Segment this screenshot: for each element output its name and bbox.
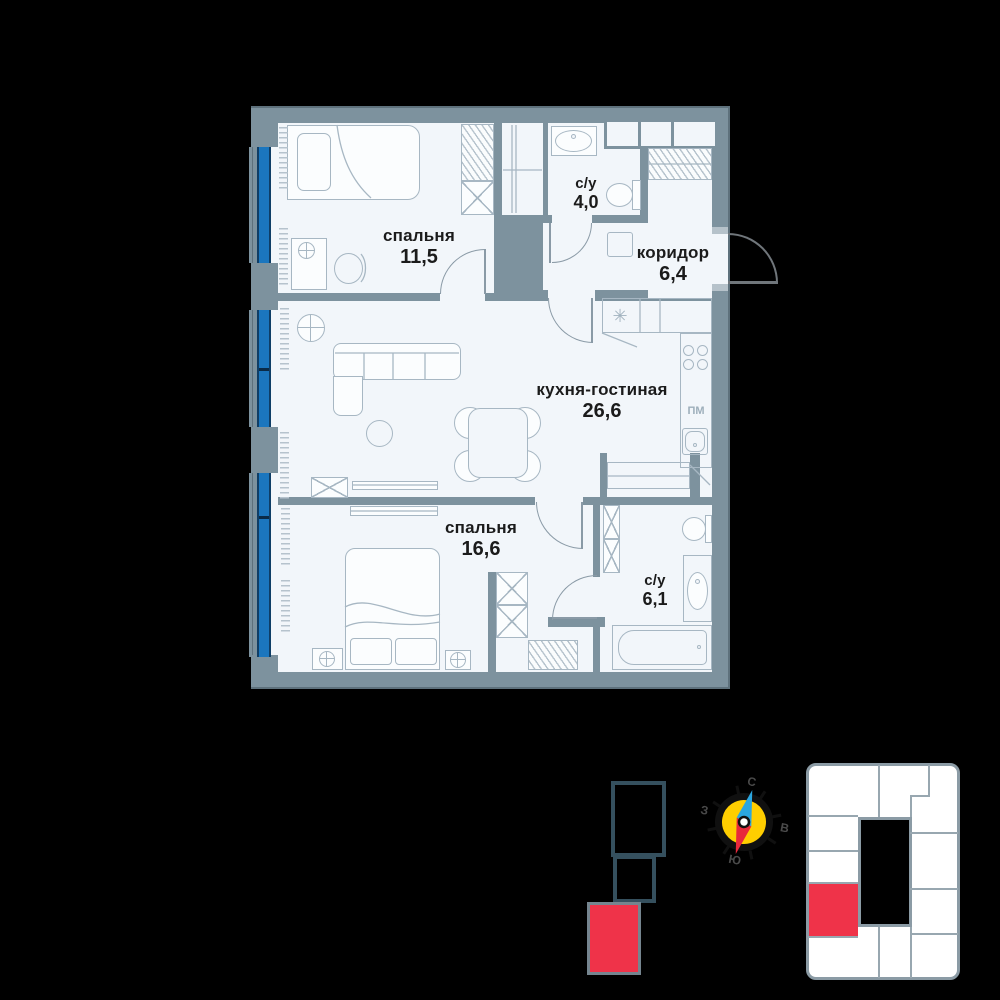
room-name: с/у: [625, 572, 685, 589]
entrance-door-leaf: [728, 281, 778, 284]
room-area: 4,0: [556, 192, 616, 213]
room-name: кухня-гостиная: [532, 380, 672, 400]
label-bedroom-2: спальня 16,6: [411, 518, 551, 561]
unit-divider: [808, 936, 858, 938]
window-glass-3: [257, 473, 271, 657]
radiator: [279, 228, 288, 285]
window-sill-2: [271, 310, 278, 427]
facade-pillar: [251, 263, 278, 310]
section-block-top: [611, 781, 666, 857]
room-area: 26,6: [532, 400, 672, 423]
door-leaf: [552, 617, 597, 619]
wardrobe-x: [496, 605, 528, 638]
unit-divider: [808, 850, 858, 852]
shaft-x: [603, 539, 620, 573]
nightstand-lamp-icon: [450, 652, 466, 668]
highlighted-unit: [809, 884, 858, 936]
stove-burner: [697, 345, 708, 356]
label-bathroom-1: с/у 4,0: [556, 175, 616, 213]
radiator: [279, 127, 288, 191]
facade-pillar: [251, 427, 278, 473]
window-tick: [259, 368, 269, 371]
wardrobe-x: [496, 572, 528, 605]
radiator: [280, 432, 289, 500]
wall-stub-closet-bed2: [488, 572, 496, 672]
room-name: с/у: [556, 175, 616, 192]
unit-divider: [910, 795, 930, 797]
sink-drain-dot: [693, 443, 697, 447]
dishwasher-label: ПМ: [677, 405, 715, 417]
bed-single-pillow: [297, 133, 331, 191]
facade-edge: [249, 473, 252, 657]
courtyard: [858, 817, 912, 927]
label-bedroom-1: спальня 11,5: [349, 226, 489, 269]
faucet-dot: [571, 134, 576, 139]
label-kitchen-living: кухня-гостиная 26,6: [532, 380, 672, 423]
radiator: [280, 308, 289, 370]
bed-pillow: [350, 638, 392, 665]
sofa-chaise: [333, 376, 363, 416]
room-closet-column: [502, 123, 543, 215]
compass-icon: С В Ю З: [690, 768, 798, 876]
room-name: спальня: [411, 518, 551, 538]
label-corridor: коридор 6,4: [628, 243, 718, 286]
closet-divider-1: [638, 122, 641, 146]
floor-lamp-icon: [297, 314, 325, 342]
unit-divider: [910, 832, 958, 834]
unit-divider: [928, 765, 930, 796]
stove-burner: [683, 359, 694, 370]
room-name: спальня: [349, 226, 489, 246]
section-block-highlight: [587, 902, 641, 975]
window-glass-1: [257, 147, 271, 263]
drain-dot: [697, 645, 701, 649]
stove-burner: [683, 345, 694, 356]
wall-stub-niche-left: [600, 453, 607, 497]
section-block-middle: [613, 855, 656, 903]
room-hall-closets: [604, 122, 715, 149]
door-leaf: [549, 223, 551, 263]
room-area: 6,4: [628, 263, 718, 286]
tv-console: [352, 481, 438, 490]
building-footprint: [806, 763, 960, 980]
toilet-tank: [632, 180, 641, 210]
window-sill-1: [271, 147, 278, 263]
dresser-tv: [350, 506, 438, 516]
window-sill-3: [271, 473, 278, 657]
room-area: 11,5: [349, 246, 489, 269]
coat-rack-hatched: [648, 148, 712, 180]
bathtub-inner: [618, 630, 707, 665]
sink-basin: [687, 572, 708, 610]
room-name: коридор: [628, 243, 718, 263]
dining-table: [468, 408, 528, 478]
label-bathroom-2: с/у 6,1: [625, 572, 685, 610]
shaft-x: [603, 505, 620, 539]
facade-pillar: [251, 655, 278, 687]
vent-star-icon: ✳: [608, 304, 632, 328]
storage-bench-hatched: [528, 640, 578, 670]
toilet-bowl: [682, 517, 706, 541]
wardrobe-x: [461, 181, 494, 215]
doorway-bedroom-1: [440, 293, 485, 301]
tv-bench-x: [311, 477, 348, 498]
unit-divider: [808, 815, 858, 817]
niche-cabinet: [607, 462, 690, 489]
nightstand-lamp-icon: [319, 651, 335, 667]
doorway-bathroom-1: [552, 215, 592, 223]
facade-edge: [249, 147, 252, 263]
facade-pillar: [251, 108, 278, 147]
faucet-dot: [695, 579, 700, 584]
radiator: [281, 508, 290, 565]
kitchen-sink-inner: [685, 431, 705, 452]
room-area: 16,6: [411, 538, 551, 561]
door-leaf: [591, 298, 593, 343]
entrance-door-arc: [728, 233, 778, 283]
unit-divider: [910, 888, 958, 890]
facade-edge: [249, 310, 252, 427]
sofa: [333, 343, 461, 380]
unit-divider: [910, 927, 912, 978]
wardrobe-hatched: [461, 124, 494, 181]
closet-divider-2: [671, 122, 674, 146]
unit-divider: [878, 927, 880, 978]
desk-lamp-icon: [298, 242, 315, 259]
room-area: 6,1: [625, 589, 685, 610]
stove-burner: [697, 359, 708, 370]
entrance-jamb-top: [712, 227, 728, 234]
unit-divider: [910, 795, 912, 817]
unit-divider: [910, 933, 958, 935]
unit-divider: [878, 765, 880, 817]
apartment-plan: ✳ ПМ: [253, 108, 728, 687]
toilet-tank: [705, 515, 712, 543]
coffee-table: [366, 420, 393, 447]
door-leaf: [581, 502, 583, 549]
bed-pillow: [395, 638, 437, 665]
compass-east: В: [777, 820, 791, 836]
radiator: [281, 580, 290, 633]
window-tick: [259, 516, 269, 519]
